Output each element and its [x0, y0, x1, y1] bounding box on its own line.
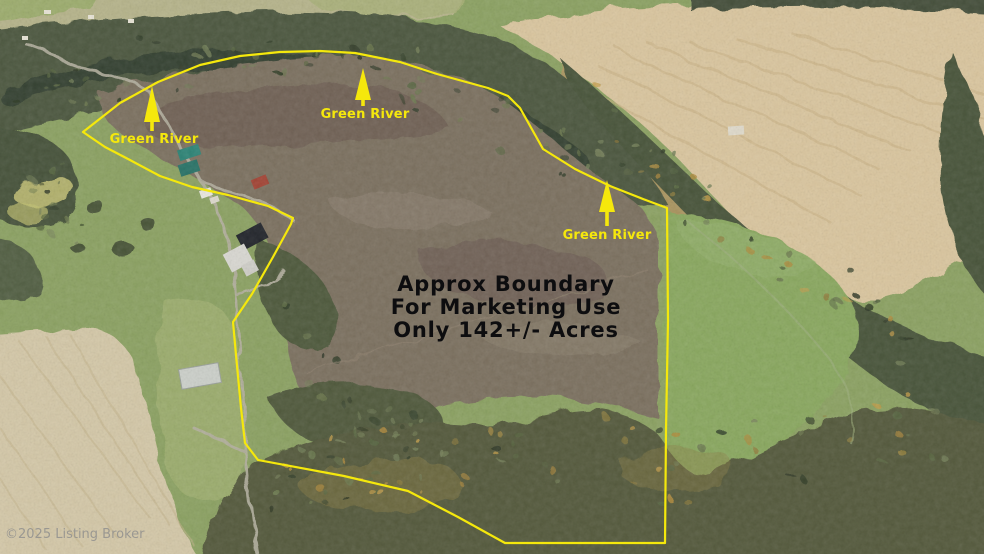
- aerial-photo-canvas: Green River Green River Green River Appr…: [0, 0, 984, 554]
- river-label-1: Green River: [110, 132, 199, 147]
- boundary-disclaimer-line-1: Approx Boundary: [397, 272, 615, 296]
- river-arrow-stem: [605, 211, 609, 226]
- river-arrow-stem: [150, 121, 154, 131]
- boundary-disclaimer-line-3: Only 142+/- Acres: [393, 318, 619, 342]
- aerial-photo: Green River Green River Green River Appr…: [0, 0, 984, 554]
- boundary-disclaimer-line-2: For Marketing Use: [391, 295, 622, 319]
- river-label-3: Green River: [563, 228, 652, 243]
- watermark: ©2025 Listing Broker: [5, 527, 145, 542]
- river-arrow-stem: [361, 99, 365, 106]
- river-label-2: Green River: [321, 107, 410, 122]
